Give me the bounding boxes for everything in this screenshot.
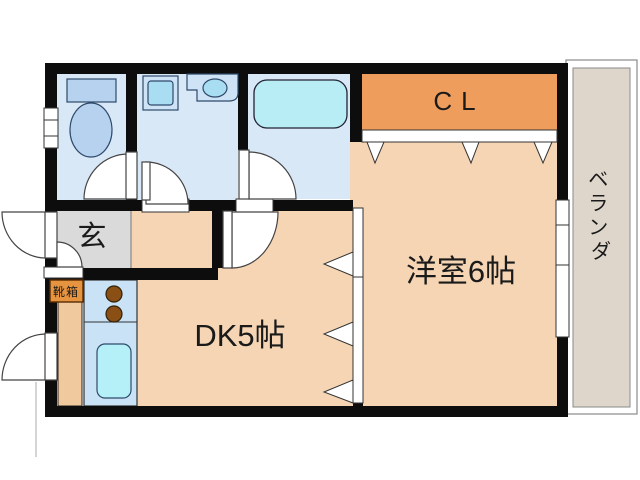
shoe-box: 靴箱 bbox=[50, 280, 83, 302]
stove-burners-icon bbox=[106, 306, 122, 322]
toilet-icon bbox=[70, 103, 112, 157]
floor-plan: ベ ラ ン ダ bbox=[0, 0, 640, 480]
washroom-door-leaf bbox=[142, 162, 150, 200]
kitchen-sink-icon bbox=[97, 344, 131, 398]
partition-door-strip bbox=[353, 208, 363, 403]
toilet-window bbox=[44, 108, 58, 148]
wall-bottom bbox=[45, 406, 568, 417]
bath-door-leaf bbox=[239, 150, 249, 199]
dk-label: DK5帖 bbox=[194, 318, 285, 353]
wall-top bbox=[45, 63, 568, 74]
bathtub-icon bbox=[254, 80, 347, 128]
entrance-door-leaf bbox=[45, 212, 57, 258]
wall-washroom-bath bbox=[238, 74, 248, 150]
stove-burners-icon bbox=[106, 286, 122, 302]
storage-door-leaf bbox=[45, 333, 57, 380]
wall-wet-row-bottom bbox=[45, 200, 353, 211]
wall-right-lower bbox=[557, 337, 568, 417]
wall-toilet-washroom bbox=[126, 74, 137, 152]
sink-icon bbox=[203, 79, 227, 97]
wall-left-1 bbox=[45, 63, 57, 108]
shoe-box-label: 靴箱 bbox=[53, 284, 79, 299]
closet-label: CL bbox=[433, 86, 484, 116]
bath-threshold bbox=[236, 199, 273, 212]
dk-door-leaf bbox=[223, 211, 232, 268]
toilet-icon bbox=[67, 79, 116, 102]
closet-door-strip bbox=[362, 130, 557, 142]
entrance-threshold bbox=[44, 267, 83, 278]
western-room-label: 洋室6帖 bbox=[406, 254, 516, 289]
wall-right-upper bbox=[557, 63, 568, 200]
washing-machine-pan-icon bbox=[148, 81, 173, 105]
wall-bath-closet bbox=[350, 74, 362, 142]
balcony: ベ ラ ン ダ bbox=[566, 60, 637, 414]
balcony-window bbox=[556, 200, 569, 337]
toilet-door-leaf bbox=[126, 152, 137, 199]
entrance-label: 玄 bbox=[77, 220, 106, 253]
wall-dk-door-stub bbox=[212, 211, 223, 268]
